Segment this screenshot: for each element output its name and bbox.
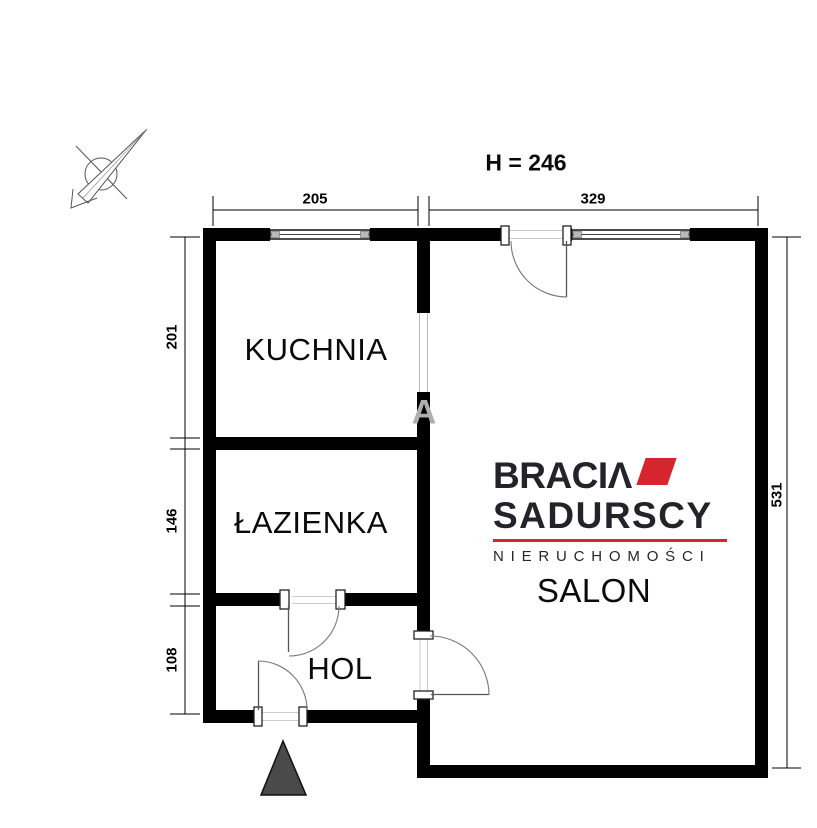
room-label-bathroom: ŁAZIENKA [234,505,388,541]
room-label-hall: HOL [307,651,372,687]
dim-left-kitchen: 201 [164,324,181,349]
dim-right-living: 531 [769,482,786,507]
dim-left-bathroom: 146 [164,508,181,533]
room-label-living: SALON [537,572,651,610]
dim-top-living: 329 [580,191,605,208]
logo-red-rule [493,539,727,542]
logo-word-nieruchomosci: NIERUCHOMOŚCI [493,548,727,565]
logo-line1: BRACIΛ [493,457,727,494]
logo-red-flag-icon [636,458,676,485]
kitchen-window [270,230,370,239]
watermark-letter: A [412,394,437,433]
ceiling-height-note: H = 246 [485,150,566,177]
floor-plan-canvas: H = 246 205 329 201 146 108 531 KUCHNIA … [0,0,817,828]
logo-word-bracia-last: Λ [608,457,632,494]
dim-left-hall: 108 [164,647,181,672]
entrance-triangle-icon [261,741,306,795]
logo-word-sadurscy: SADURSCY [493,497,727,534]
room-label-kitchen: KUCHNIA [244,332,387,368]
north-arrow-icon [71,129,147,208]
agency-logo: BRACIΛ SADURSCY NIERUCHOMOŚCI [493,457,727,565]
floor-plan-drawing [0,0,817,828]
logo-word-bracia: BRACI [493,457,608,494]
living-room-window [572,230,690,239]
dim-top-kitchen: 205 [302,191,327,208]
